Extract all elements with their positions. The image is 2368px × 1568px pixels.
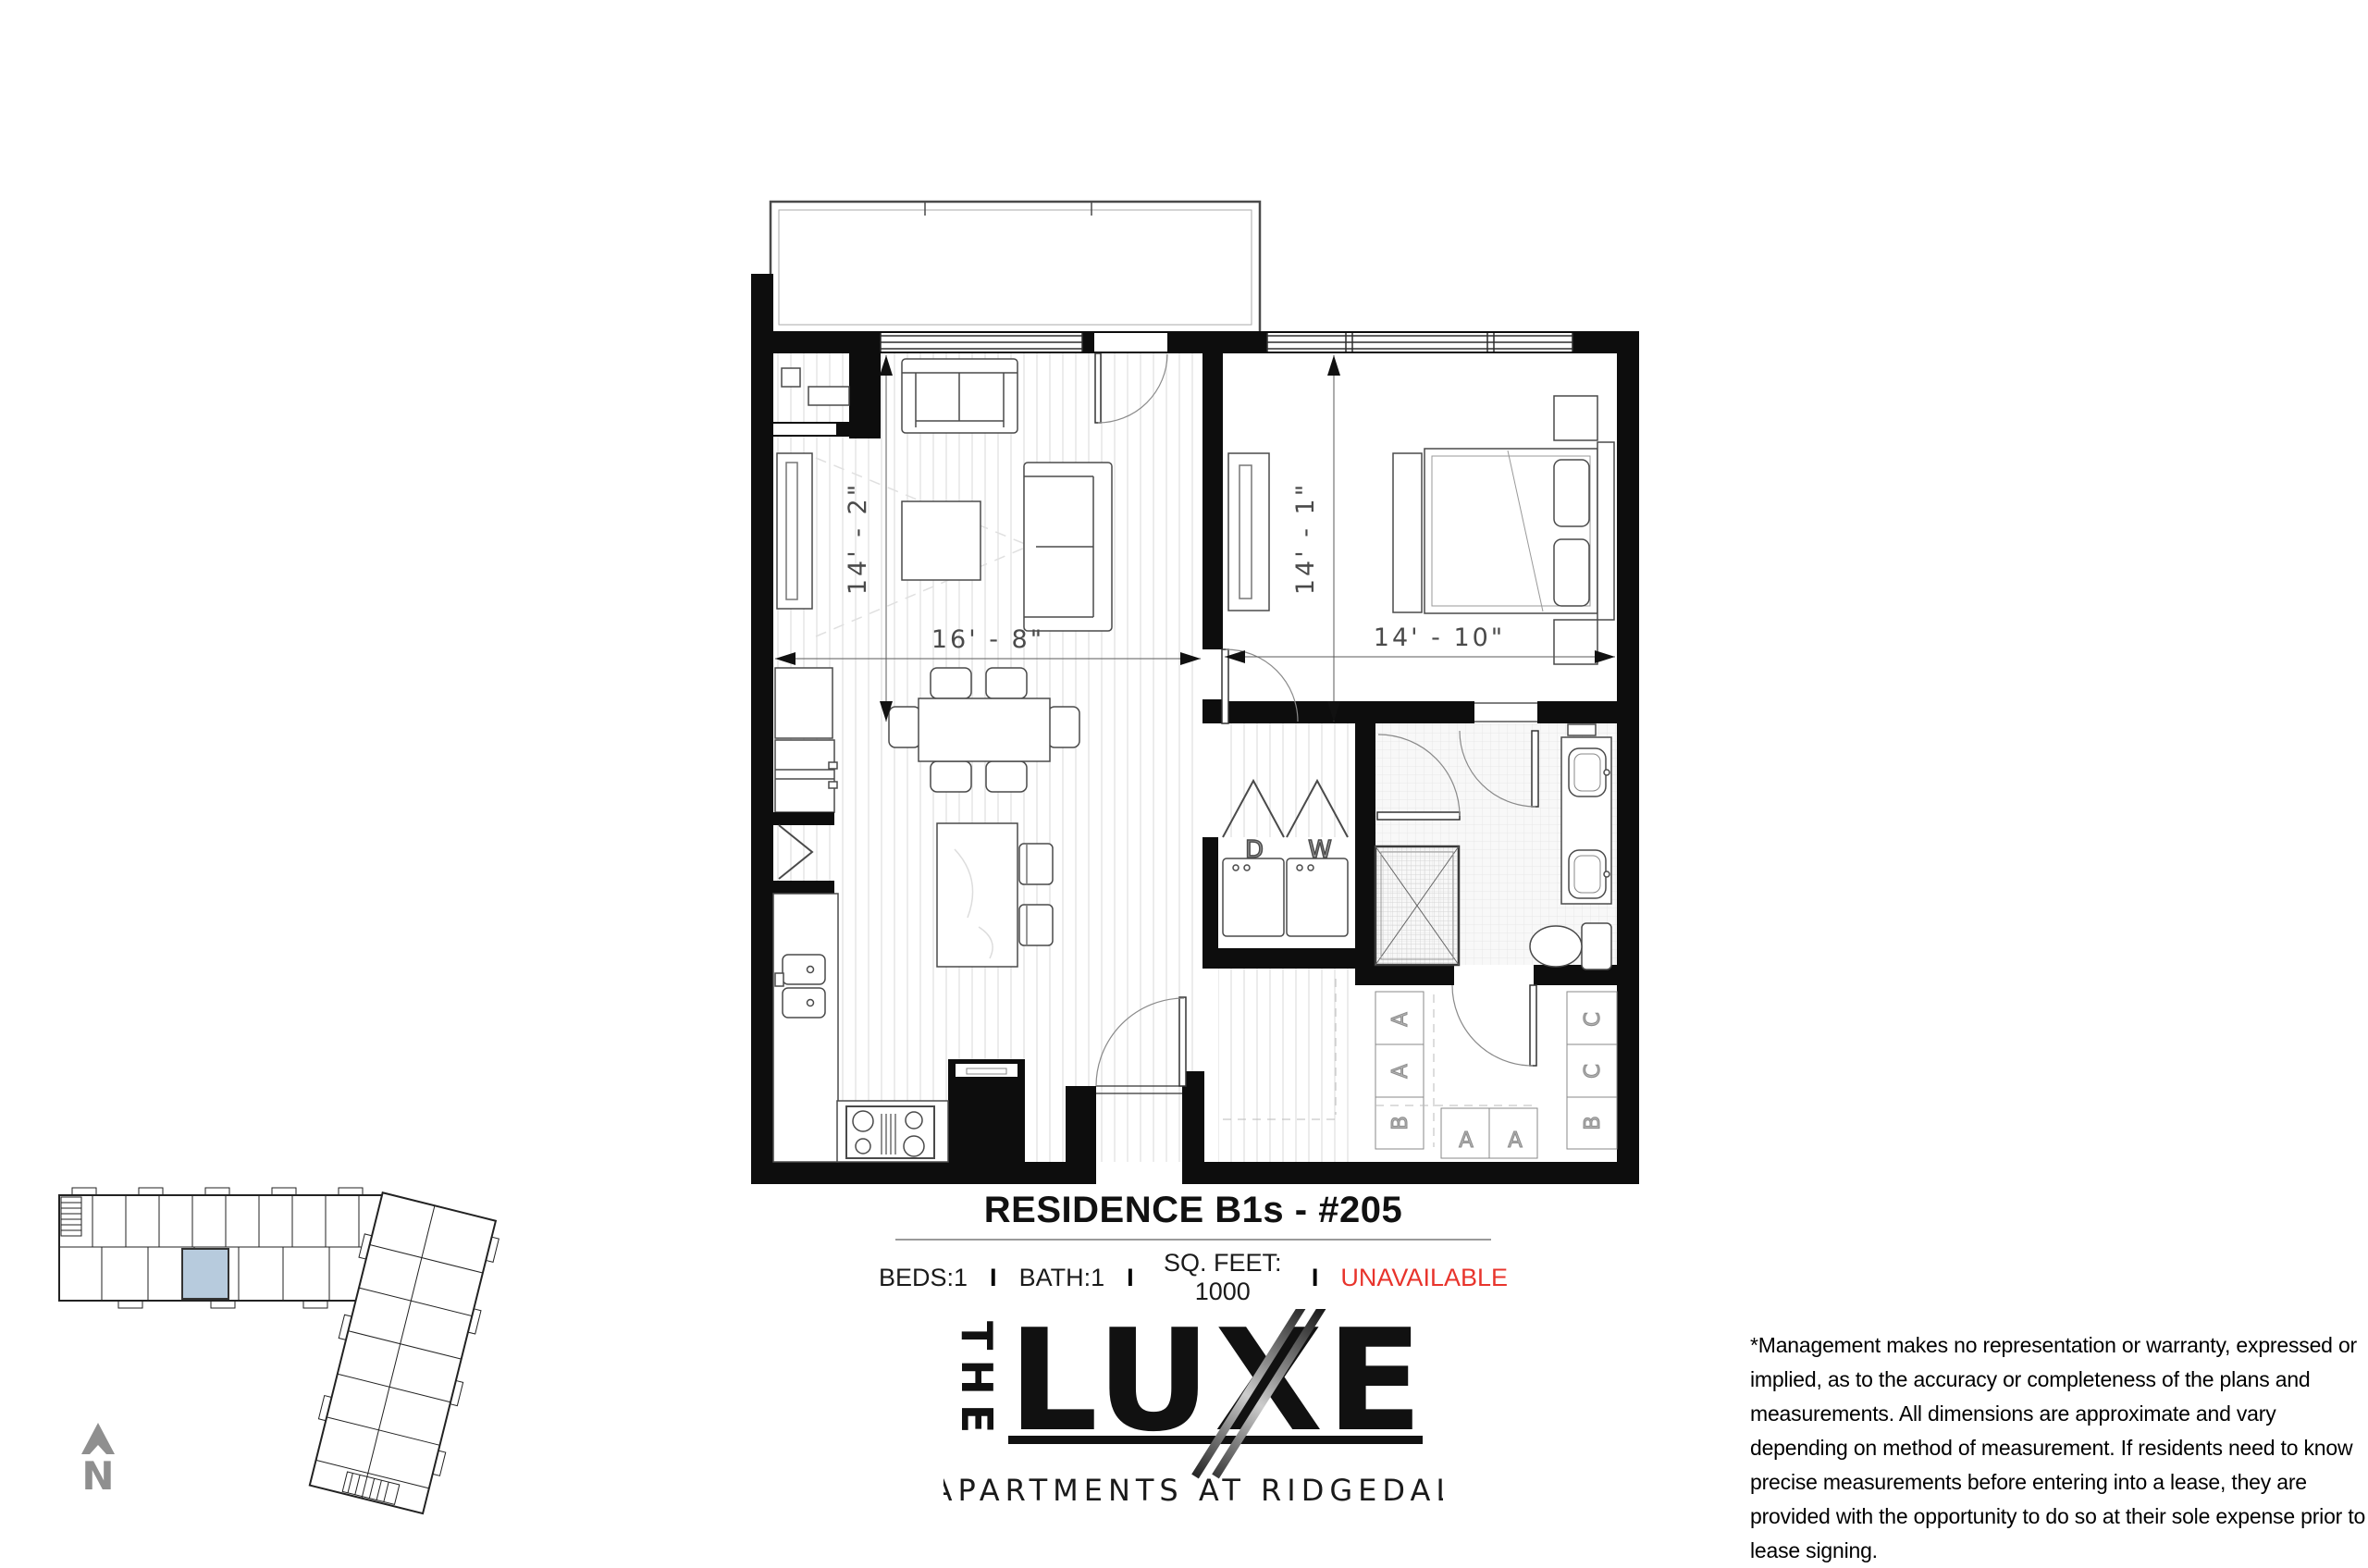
dining-table xyxy=(919,698,1050,761)
wood-floor-hall xyxy=(1223,723,1355,837)
spec-divider: I xyxy=(1127,1264,1134,1292)
window-bedroom xyxy=(1267,333,1572,352)
window-living xyxy=(881,333,1082,352)
dim-bedroom-width: 14' - 10" xyxy=(1374,623,1505,652)
luxe-logo: THE LUXE APARTMENTS AT RIDGEDALE xyxy=(943,1309,1443,1531)
cooktop xyxy=(846,1106,934,1158)
wall-bedroom-south-b xyxy=(1537,701,1617,723)
shower-door-leaf xyxy=(1377,812,1460,820)
bed xyxy=(1424,442,1614,620)
headboard xyxy=(1597,442,1614,620)
stool xyxy=(1019,905,1053,945)
bath-door-threshold xyxy=(1474,703,1537,722)
shelf-label: B xyxy=(1388,1116,1412,1130)
nightstand xyxy=(1554,396,1597,440)
dryer-label: D xyxy=(1245,836,1264,864)
shelf-label: B xyxy=(1581,1116,1605,1130)
wall-entry-side xyxy=(1182,1071,1204,1184)
dim-living-depth: 14' - 2" xyxy=(844,482,872,595)
dim-living-width: 16' - 8" xyxy=(931,625,1044,654)
pillow xyxy=(1554,539,1589,606)
entry-door-leaf xyxy=(1179,997,1186,1086)
wall-bottom-left xyxy=(751,1162,1096,1184)
beds-spec: BEDS:1 xyxy=(879,1264,968,1292)
loveseat xyxy=(902,359,1017,433)
dim-bedroom-depth: 14' - 1" xyxy=(1291,482,1320,595)
title-block: RESIDENCE B1s - #205 BEDS:1 I BATH:1 I S… xyxy=(879,1190,1508,1306)
wall-left xyxy=(751,331,773,1184)
shelf-label: C xyxy=(1581,1012,1605,1027)
plan-title: RESIDENCE B1s - #205 xyxy=(879,1190,1508,1231)
shelf-label: C xyxy=(1581,1064,1605,1079)
utility-opening xyxy=(773,424,836,435)
shelf-label: A xyxy=(1388,1064,1412,1079)
refrigerator xyxy=(775,740,837,812)
north-arrow: N xyxy=(81,1423,115,1499)
wall-right xyxy=(1617,331,1639,1184)
sofa xyxy=(1024,463,1112,631)
wood-floor-mudroom xyxy=(1218,969,1355,1162)
bed-bench xyxy=(1393,453,1422,612)
dryer xyxy=(1223,858,1284,936)
vanity xyxy=(1561,724,1611,904)
shelf-label: A xyxy=(1388,1012,1412,1027)
highlighted-unit xyxy=(182,1249,228,1299)
wall-bedroom-south-a xyxy=(1223,701,1474,723)
washer-label: W xyxy=(1308,836,1332,864)
coffee-table xyxy=(902,501,980,580)
wall-laundry-west xyxy=(1202,837,1218,948)
wall-bath-west xyxy=(1355,723,1375,965)
pillow xyxy=(1554,460,1589,526)
tv-screen xyxy=(786,463,797,599)
stairwell-hatch xyxy=(61,1197,81,1236)
building-top-bar xyxy=(59,1188,388,1308)
wall-utility-east xyxy=(849,331,881,438)
wall-closet-north-a xyxy=(1355,965,1454,985)
bath-spec: BATH:1 xyxy=(1019,1264,1105,1292)
toilet xyxy=(1530,923,1611,969)
washer xyxy=(1287,858,1348,936)
counter-left xyxy=(773,894,838,1162)
disclaimer-text: *Management makes no representation or w… xyxy=(1750,1328,2368,1568)
nightstand xyxy=(1554,620,1597,664)
floor-plan: D W A A B C C B A A xyxy=(746,117,1656,1191)
logo-tagline: APARTMENTS AT RIDGEDALE xyxy=(943,1473,1443,1508)
shelf-label: A xyxy=(1459,1129,1474,1153)
spec-divider: I xyxy=(1312,1264,1319,1292)
bedroom-door-leaf xyxy=(1222,649,1228,723)
sqfeet-spec: SQ. FEET: 1000 xyxy=(1156,1249,1289,1306)
wall-oven xyxy=(956,1064,1017,1077)
closet-door-leaf xyxy=(1530,985,1536,1066)
shower xyxy=(1375,846,1459,965)
balcony-door-leaf xyxy=(1095,353,1101,423)
wall-bottom-right xyxy=(1182,1162,1639,1184)
wall-corner-block xyxy=(1202,699,1223,723)
bath-door-leaf xyxy=(1532,731,1538,807)
wall-bedroom-west xyxy=(1202,353,1223,649)
availability-status: UNAVAILABLE xyxy=(1340,1264,1508,1292)
wall-entry-stub xyxy=(1066,1086,1096,1184)
shelf-label: A xyxy=(1508,1129,1523,1153)
wall-laundry-south xyxy=(1202,948,1375,969)
stool xyxy=(1019,844,1053,884)
counter-upper xyxy=(775,668,832,738)
title-rule xyxy=(895,1239,1491,1241)
balcony xyxy=(771,202,1260,333)
dresser-inner xyxy=(1239,465,1252,599)
specs-row: BEDS:1 I BATH:1 I SQ. FEET: 1000 I UNAVA… xyxy=(879,1249,1508,1306)
closet-door-swing xyxy=(1452,985,1533,1066)
spec-divider: I xyxy=(990,1264,997,1292)
site-key-plan: N xyxy=(46,1170,509,1540)
logo-the: THE xyxy=(952,1321,1002,1442)
north-label: N xyxy=(81,1453,114,1499)
wall-balcony-pier xyxy=(751,274,773,333)
